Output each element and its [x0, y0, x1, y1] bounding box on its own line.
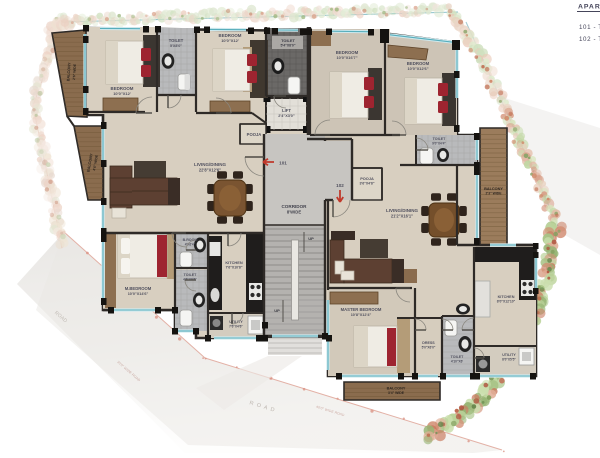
- svg-text:3'4" WIDE: 3'4" WIDE: [388, 391, 405, 395]
- svg-text:21'2"X16'1": 21'2"X16'1": [391, 213, 413, 218]
- svg-text:7'6"X4'6": 7'6"X4'6": [229, 324, 243, 328]
- svg-text:8'0"X12'10": 8'0"X12'10": [497, 300, 516, 304]
- svg-text:102 - TWO BHK: 102 - TWO BHK: [579, 36, 600, 43]
- svg-text:KITCHEN: KITCHEN: [225, 260, 242, 265]
- svg-text:TOILET: TOILET: [281, 38, 295, 43]
- svg-text:2'3" WIDE: 2'3" WIDE: [486, 192, 503, 196]
- svg-text:8'WIDE: 8'WIDE: [287, 209, 301, 214]
- svg-text:LIFT: LIFT: [282, 108, 291, 113]
- svg-text:101 - TWO BHK: 101 - TWO BHK: [579, 24, 600, 31]
- svg-text:10'0"X16'7": 10'0"X16'7": [336, 55, 357, 60]
- svg-text:TOILET: TOILET: [433, 137, 447, 141]
- svg-text:10'8"X12'4": 10'8"X12'4": [351, 313, 372, 317]
- svg-text:5'X8'0": 5'X8'0": [170, 44, 182, 48]
- svg-text:KITCHEN: KITCHEN: [498, 295, 515, 299]
- svg-text:7'6"X10'8": 7'6"X10'8": [225, 266, 242, 270]
- svg-text:MASTER BEDROOM: MASTER BEDROOM: [341, 307, 382, 312]
- svg-text:9'0"X4'4": 9'0"X4'4": [432, 141, 446, 145]
- svg-text:TOILET: TOILET: [169, 38, 184, 43]
- svg-text:TOILET: TOILET: [451, 355, 465, 359]
- svg-text:5'0"X6'0": 5'0"X6'0": [422, 345, 436, 349]
- svg-text:5'4"X8'0": 5'4"X8'0": [280, 44, 295, 48]
- svg-text:UP: UP: [274, 308, 280, 313]
- svg-text:POOJA: POOJA: [360, 176, 374, 181]
- svg-text:DRESS: DRESS: [422, 341, 435, 345]
- svg-text:4'X6'4": 4'X6'4": [185, 242, 196, 246]
- svg-text:3'6"X4'8": 3'6"X4'8": [359, 182, 374, 186]
- svg-text:4'10"X6': 4'10"X6': [451, 359, 463, 363]
- svg-text:22'8"X12'6": 22'8"X12'6": [199, 167, 221, 172]
- svg-text:UP: UP: [308, 236, 314, 241]
- svg-text:10'0"X12'6": 10'0"X12'6": [407, 66, 428, 71]
- svg-text:101: 101: [279, 161, 287, 166]
- svg-text:10'0"X12': 10'0"X12': [113, 91, 131, 96]
- svg-text:BALCONY: BALCONY: [484, 187, 503, 191]
- svg-text:2'4"X3'0": 2'4"X3'0": [278, 114, 295, 118]
- svg-text:M.BEDROOM: M.BEDROOM: [125, 286, 152, 291]
- svg-text:APARTMENT: APARTMENT: [578, 4, 600, 11]
- svg-text:CORRIDOR: CORRIDOR: [281, 204, 307, 209]
- svg-text:LIVING/DINING: LIVING/DINING: [194, 162, 227, 167]
- svg-text:8'0"X5'5": 8'0"X5'5": [502, 357, 516, 361]
- svg-text:TOILET: TOILET: [184, 273, 198, 277]
- svg-text:10'0"X14'6": 10'0"X14'6": [128, 292, 149, 296]
- svg-text:LIVING/DINING: LIVING/DINING: [386, 208, 419, 213]
- svg-text:10'0"X12': 10'0"X12': [221, 38, 239, 43]
- svg-text:BALCONY: BALCONY: [387, 387, 406, 391]
- svg-text:POOJA: POOJA: [247, 132, 262, 137]
- svg-text:UTILITY: UTILITY: [502, 353, 516, 357]
- svg-text:102: 102: [336, 183, 344, 188]
